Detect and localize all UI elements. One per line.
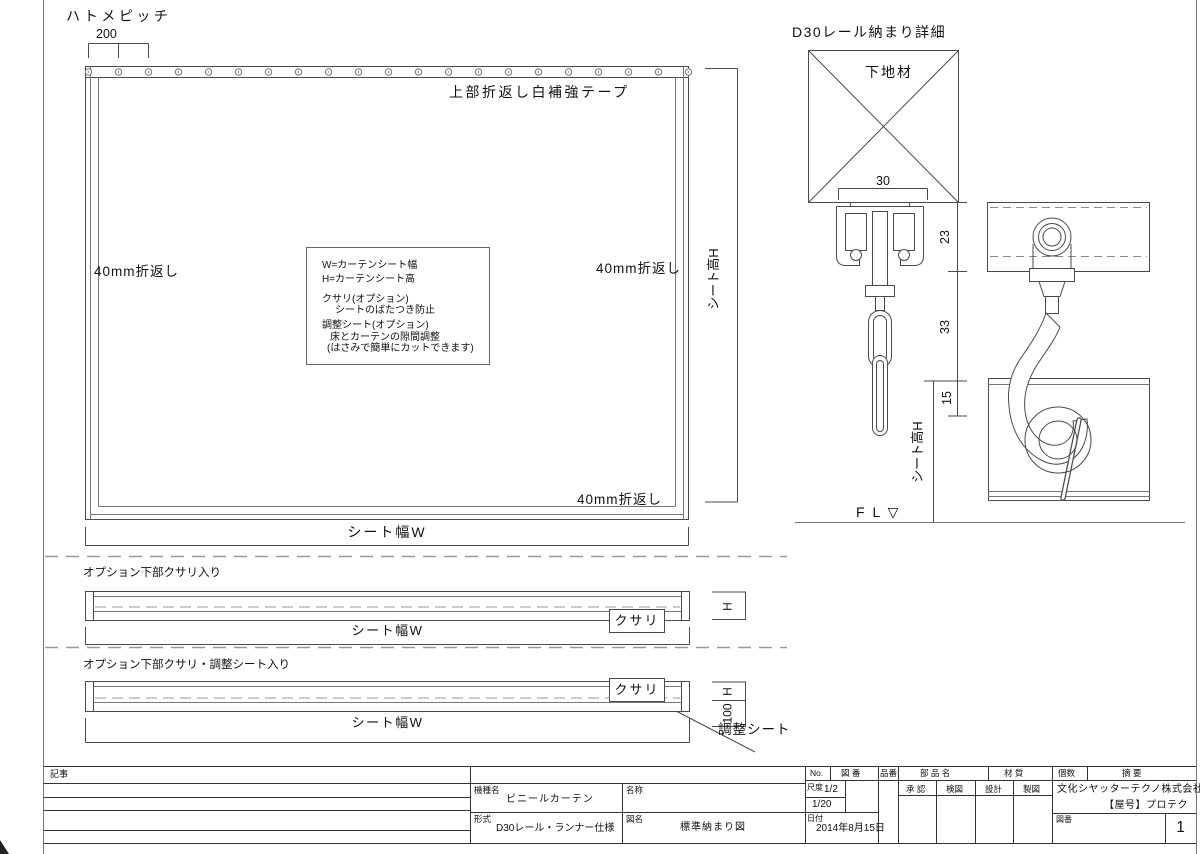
adjust-sheet-label: 調整シート (718, 722, 791, 738)
detail-title: D30レール納まり詳細 (792, 24, 946, 40)
option2-title: オプション下部クサリ・調整シート入り (83, 659, 290, 672)
sheet-height-label-main: シート高H (707, 224, 725, 334)
header-kosu: 個数 (1058, 769, 1075, 779)
drawing-name-label: 図名 (626, 815, 643, 825)
company-name: 文化シヤッターテクノ株式会社 (1057, 784, 1200, 796)
dim-30: 30 (872, 174, 894, 188)
sheet-width-label-main: シート幅W (85, 524, 689, 540)
sheet-no-value: 1 (1165, 819, 1196, 837)
model-label: 機種名 (474, 786, 500, 796)
approval-shonin: 承 認 (906, 785, 925, 795)
header-zaishitsu: 材 質 (1004, 769, 1023, 779)
fold-right-label: 40mm折返し (596, 261, 681, 277)
note-line: (はさみで簡単にカットできます) (327, 343, 474, 355)
note-line: シートのばたつき防止 (335, 305, 435, 317)
technical-drawing-page: ハトメピッチ 200 上部折返し白補強テープ 40mm折返し 40mm折返し 4… (0, 0, 1200, 854)
scale-label: 尺度 (807, 783, 823, 792)
dim-23: 23 (938, 219, 954, 255)
notes-box: W=カーテンシート幅 H=カーテンシート高 クサリ(オプション) シートのばたつ… (306, 247, 490, 365)
dim-33: 33 (938, 309, 954, 345)
option1-height-label: H (722, 597, 735, 617)
header-zuban: 図 番 (841, 769, 860, 779)
company-brand: 【屋号】プロテク (1104, 800, 1188, 812)
approval-seizu: 製図 (1023, 785, 1040, 795)
option2-chain-tag: クサリ (609, 678, 665, 702)
pitch-value: 200 (96, 27, 117, 41)
fold-bottom-label: 40mm折返し (577, 492, 662, 508)
rail-runner-side-view (988, 203, 1150, 314)
grommet-row (85, 69, 691, 75)
top-tape-label: 上部折返し白補強テープ (449, 84, 630, 100)
note-line: 床とカーテンの隙間調整 (330, 332, 440, 344)
option1-width-label: シート幅W (85, 624, 690, 639)
header-no: No. (810, 769, 823, 779)
dim-15: 15 (940, 380, 956, 416)
option1-title: オプション下部クサリ入り (83, 567, 221, 580)
grommet-pitch-label: ハトメピッチ (66, 8, 171, 24)
base-material-label: 下地材 (862, 64, 916, 80)
note-line: W=カーテンシート幅 (322, 260, 417, 272)
note-line: クサリ(オプション) (322, 294, 409, 306)
type-label: 形式 (474, 815, 491, 825)
approval-sekkei: 設計 (985, 785, 1002, 795)
model-value: ビニールカーテン (506, 794, 594, 806)
grommet-pitch-dimension (89, 44, 149, 59)
header-tekiyo: 摘 要 (1122, 769, 1141, 779)
option2-width-label: シート幅W (85, 716, 690, 731)
header-hinban: 品番 (880, 769, 897, 779)
name-label: 名称 (626, 786, 643, 796)
scale-value2: 1/20 (812, 799, 831, 811)
approval-kenzu: 検図 (946, 785, 963, 795)
remarks-label: 記事 (50, 769, 68, 779)
fold-left-label: 40mm折返し (94, 264, 179, 280)
sheet-no-label: 図番 (1056, 815, 1072, 824)
note-line: 調整シート(オプション) (322, 320, 429, 332)
sheet-height-label-detail: シート高H (911, 397, 929, 507)
note-line: H=カーテンシート高 (322, 274, 415, 286)
date-label: 日付 (807, 814, 823, 823)
drawing-name-value: 標準納まり図 (680, 822, 746, 834)
date-value: 2014年8月15日 (816, 823, 885, 835)
option2-chain-label: クサリ (614, 683, 659, 698)
floor-line-label: F L ▽ (856, 504, 900, 520)
type-value: D30レール・ランナー仕様 (496, 823, 614, 835)
header-buhinmei: 部 品 名 (920, 769, 950, 779)
scale-value1: 1/2 (824, 784, 838, 796)
